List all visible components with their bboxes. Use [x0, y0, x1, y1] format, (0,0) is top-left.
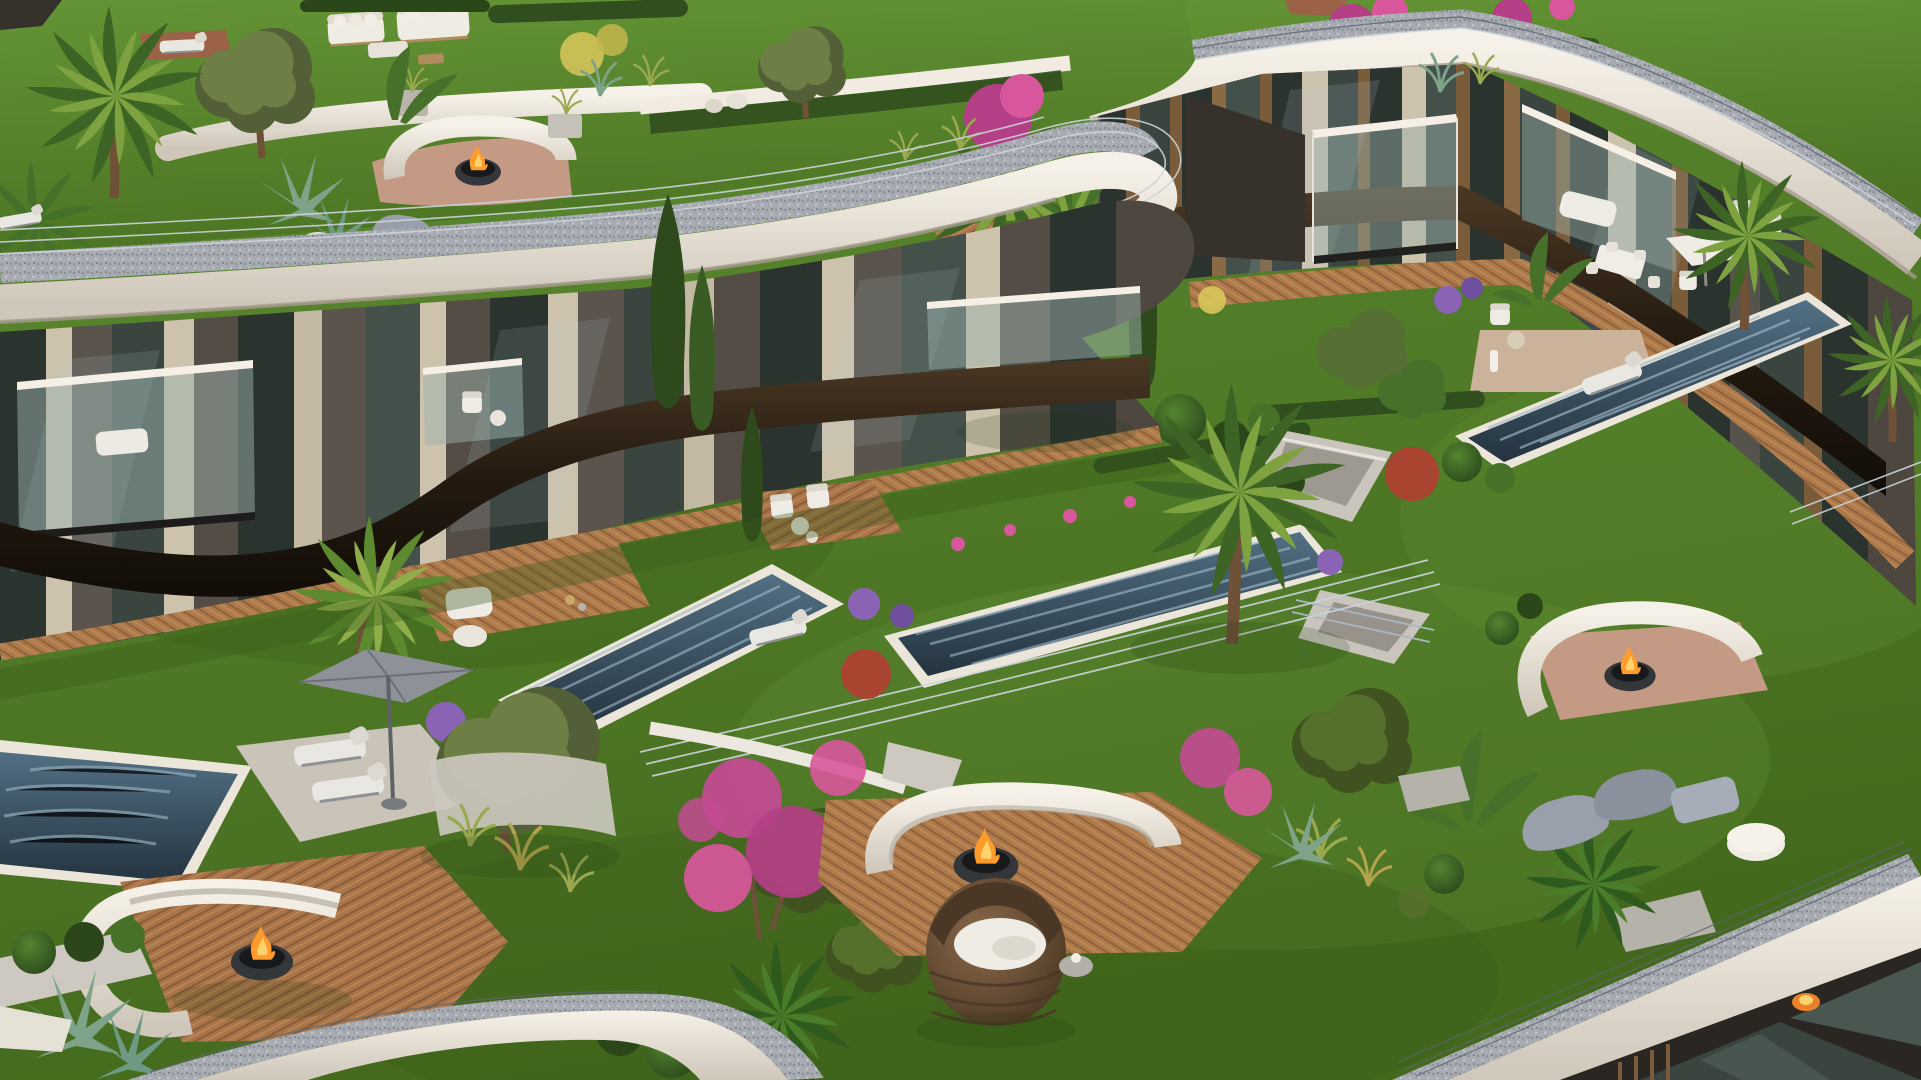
- shrub: [1398, 886, 1430, 918]
- pink-bougainvillea: [1000, 74, 1044, 118]
- right-balcony: [1312, 114, 1458, 264]
- round-pouf: [453, 625, 487, 647]
- kettle: [1071, 953, 1081, 963]
- round-pot: [705, 99, 723, 113]
- wood-bench: [418, 53, 445, 65]
- architectural-render: [0, 0, 1921, 1080]
- left-balcony: [423, 358, 524, 446]
- round-pot: [726, 93, 748, 109]
- outdoor-sofa: [327, 11, 385, 47]
- bush-mound: [64, 922, 104, 962]
- lavender-bush: [1434, 286, 1462, 314]
- hedge-row: [300, 0, 490, 12]
- box-ball: [1442, 442, 1482, 482]
- red-flower-bush: [1385, 447, 1439, 501]
- left-balcony: [17, 360, 255, 540]
- balcony-sofa: [95, 428, 149, 456]
- lavender-bush: [1461, 277, 1483, 299]
- round-pouf-top: [1727, 823, 1785, 853]
- planter-box: [548, 114, 582, 138]
- lavender-bush: [890, 604, 914, 628]
- lavender-bush: [1317, 549, 1343, 575]
- lavender-bush: [848, 588, 880, 620]
- bush-mound: [111, 919, 145, 953]
- yellow-flower-bush: [596, 24, 628, 56]
- yellow-flower-bush: [1198, 286, 1226, 314]
- bush-mound: [12, 930, 56, 974]
- white-vase: [1490, 350, 1498, 372]
- lantern: [578, 603, 586, 611]
- shrub: [1485, 611, 1519, 645]
- red-flower-bush: [841, 649, 891, 699]
- balcony-table: [490, 410, 506, 426]
- lantern: [565, 595, 575, 605]
- render-viewport: [0, 0, 1921, 1080]
- shrub: [1424, 854, 1464, 894]
- balcony-chair: [462, 391, 482, 413]
- box-ball: [1485, 463, 1515, 493]
- interior-fire-glow: [1799, 995, 1813, 1005]
- shrub: [1517, 593, 1543, 619]
